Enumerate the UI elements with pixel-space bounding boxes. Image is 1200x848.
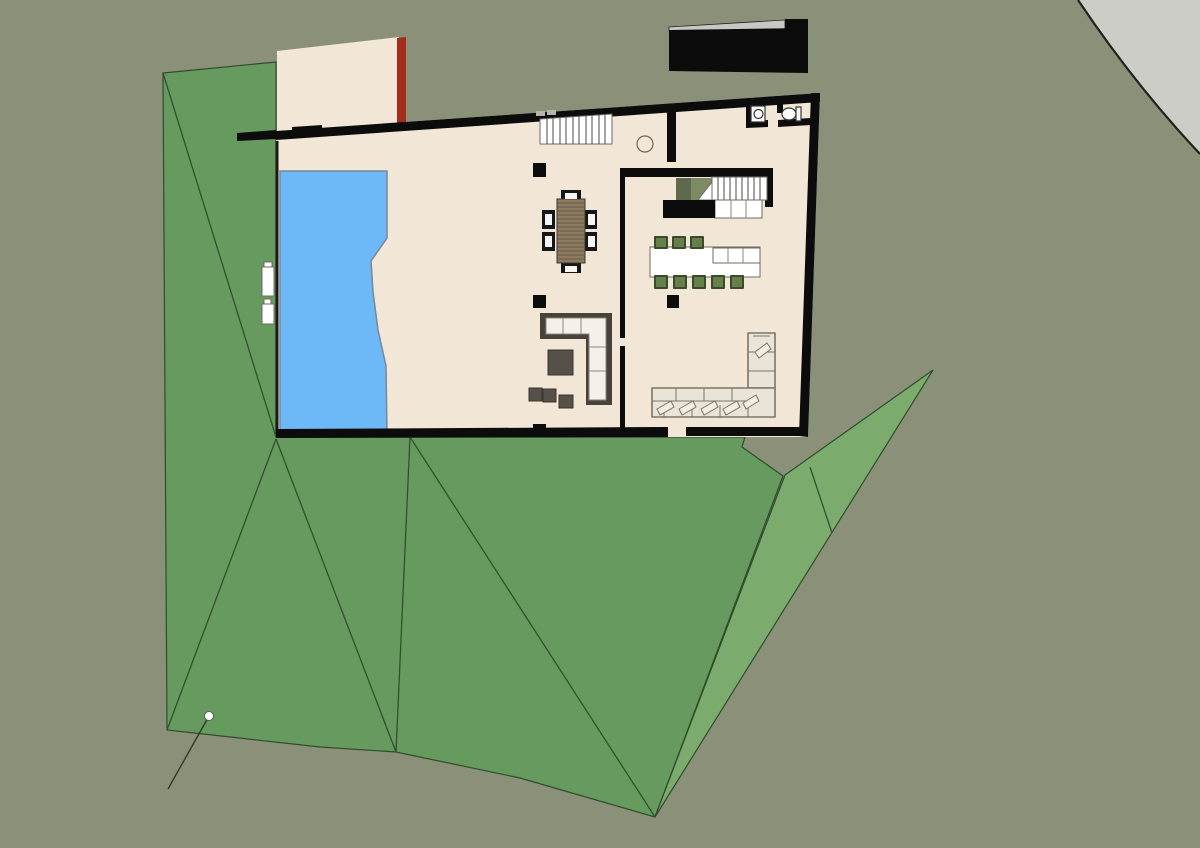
coffee-table [548,350,573,375]
bathroom-sink-bowl [754,110,763,119]
bathroom-toilet [782,107,801,121]
red-accent-wall [397,37,406,124]
swimming-pool [280,171,387,432]
kitchen-counter [663,200,715,218]
roof-black-cap [785,19,808,29]
sun-lounger [262,304,274,324]
survey-point-marker [205,712,214,721]
secondary-staircase [712,177,767,200]
stairwell-void-dark [676,178,691,200]
sectional-sofa-arm [748,333,775,388]
entry-patio [277,37,399,131]
sun-lounger [262,267,274,296]
stair-landing-cabinet [715,200,762,218]
floorplan-canvas [0,0,1200,848]
main-staircase [540,114,612,144]
dining-table-slats [557,203,585,259]
floorplan-viewport [0,0,1200,848]
sun-lounger-headrest [264,299,271,304]
roof-black-body [669,28,808,73]
sun-lounger-headrest [264,262,272,267]
kitchen-island-cells [713,248,760,263]
